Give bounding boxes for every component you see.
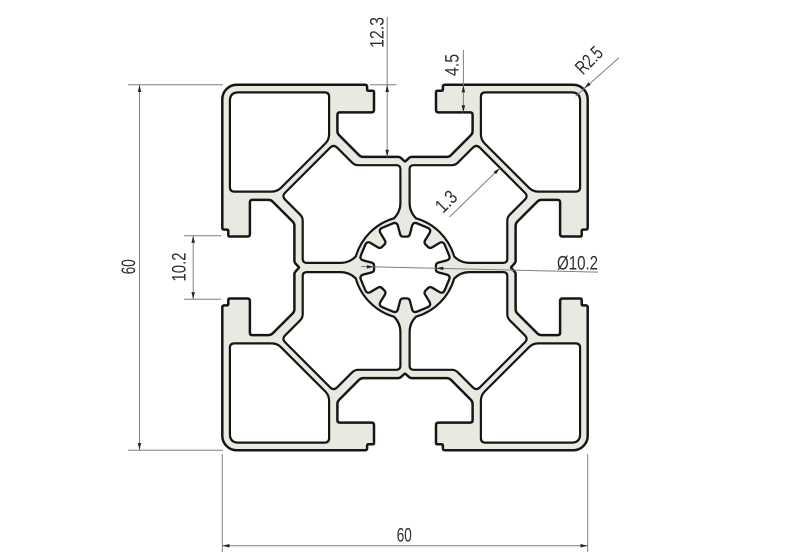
svg-text:12.3: 12.3 (367, 17, 389, 48)
svg-text:10.2: 10.2 (169, 253, 191, 282)
svg-text:Ø10.2: Ø10.2 (557, 253, 598, 275)
svg-text:60: 60 (397, 525, 412, 547)
svg-text:60: 60 (118, 259, 140, 274)
svg-text:4.5: 4.5 (442, 54, 464, 76)
